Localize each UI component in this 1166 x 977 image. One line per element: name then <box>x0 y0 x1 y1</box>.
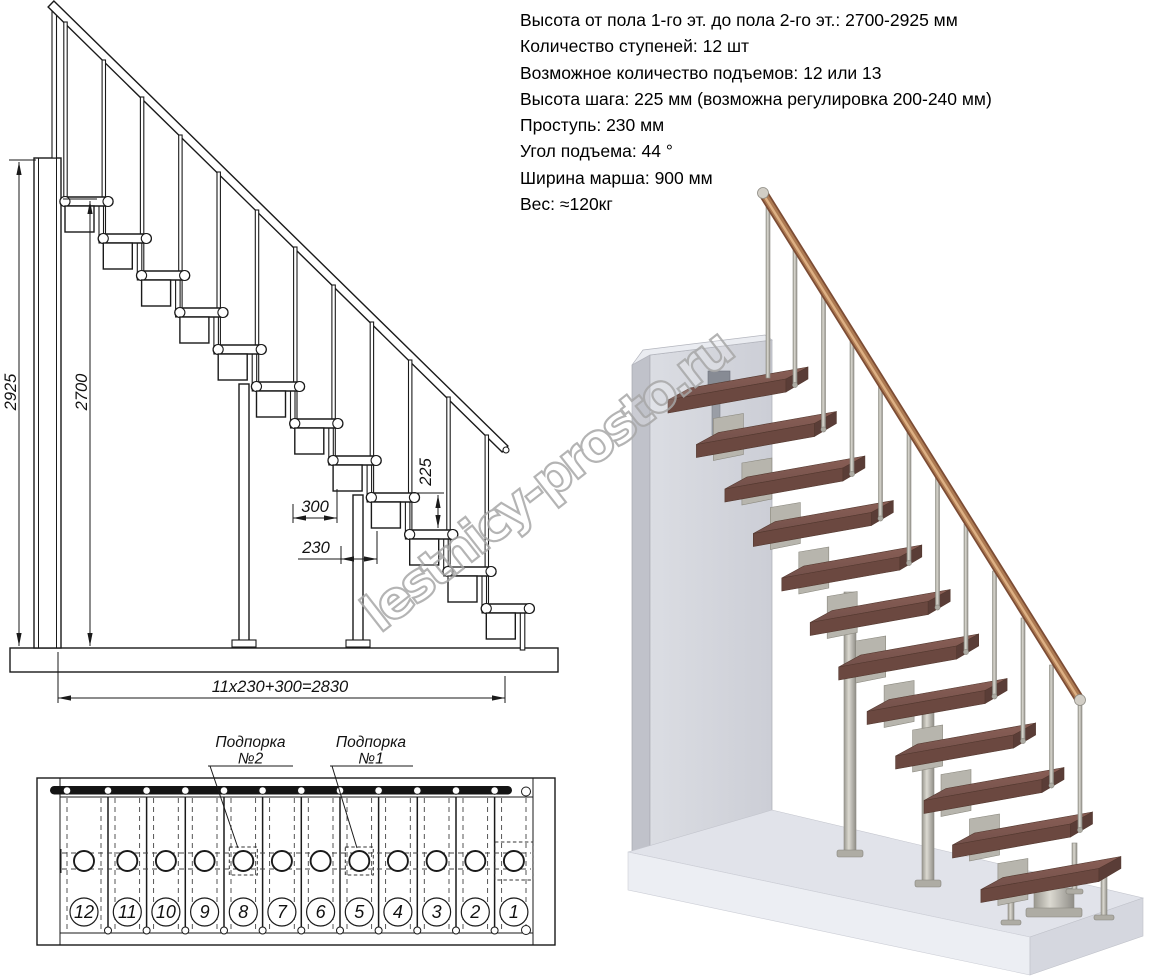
page: 2925 2700 300 230 225 11x230+300=2830 Вы… <box>0 0 1166 977</box>
plan-handrail-bar <box>50 786 512 795</box>
step-number: 11 <box>118 902 137 922</box>
support2-label: №2 <box>238 751 264 768</box>
side-view-drawing: 2925 2700 300 230 225 11x230+300=2830 <box>0 0 580 715</box>
step-number: 5 <box>354 902 365 922</box>
support2-label: Подпорка <box>215 734 286 751</box>
support1-label: Подпорка <box>336 734 407 751</box>
step-number: 6 <box>316 902 327 922</box>
spec-line-tread: Проступь: 230 мм <box>520 112 1040 138</box>
newel-post <box>52 10 57 158</box>
spec-line-rise-height: Высота шага: 225 мм (возможна регулировк… <box>520 86 1040 112</box>
dim-rise: 225 <box>417 457 435 486</box>
dim-total-height: 2925 <box>2 373 20 412</box>
spec-line-angle: Угол подъема: 44 ° <box>520 138 1040 164</box>
spec-line-step-count: Количество ступеней: 12 шт <box>520 33 1040 59</box>
spec-line-rise-count: Возможное количество подъемов: 12 или 13 <box>520 60 1040 86</box>
wall <box>632 335 772 858</box>
balusters <box>64 22 489 604</box>
dim-run: 230 <box>301 539 330 557</box>
step-number: 12 <box>74 902 94 922</box>
floor-slab <box>10 648 558 672</box>
step-number: 7 <box>277 902 288 922</box>
step-number: 8 <box>238 902 248 922</box>
top-support-post <box>34 158 61 648</box>
support1-label: №1 <box>358 751 383 768</box>
dimensions: 2925 2700 300 230 225 11x230+300=2830 <box>2 160 505 703</box>
step-number: 3 <box>432 902 442 922</box>
step-number: 2 <box>469 902 480 922</box>
dim-clear-height: 2700 <box>73 373 91 412</box>
step-number: 10 <box>156 902 176 922</box>
support-column-1 <box>346 495 370 647</box>
step-number: 4 <box>393 902 403 922</box>
support-column-2 <box>232 384 256 647</box>
spec-line-height-range: Высота от пола 1-го эт. до пола 2-го эт.… <box>520 7 1040 33</box>
dim-tread-depth: 300 <box>301 498 329 516</box>
step-number: 9 <box>200 902 210 922</box>
step-number: 1 <box>509 902 519 922</box>
handrail-3d <box>758 188 1086 706</box>
plan-view-drawing: 12 11 10 9 8 7 6 5 4 3 2 1 Подпорка №2 П… <box>25 720 570 970</box>
render-3d <box>598 178 1166 977</box>
dim-total-run: 11x230+300=2830 <box>212 678 349 696</box>
